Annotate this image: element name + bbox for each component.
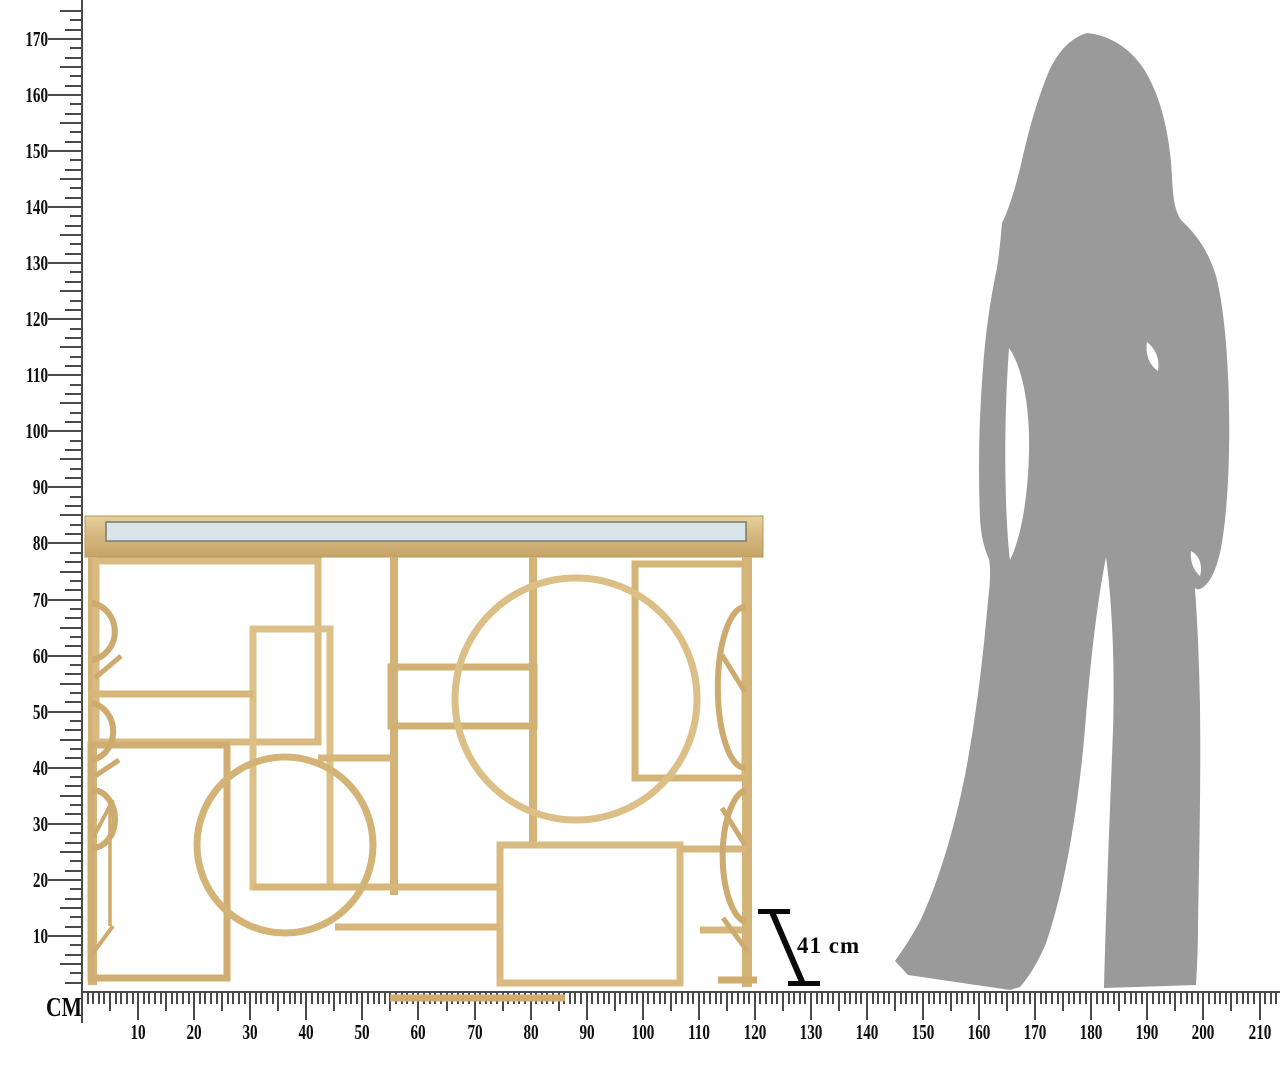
dimension-label: 41 cm: [797, 933, 860, 958]
table-posts: [88, 557, 752, 987]
product-dimension-diagram: 1020304050607080901001101201301401501601…: [0, 0, 1280, 1070]
gold-frame-circle-small: [197, 757, 373, 933]
gold-frame-circle-large: [455, 578, 697, 820]
table-mirror-top: [106, 522, 746, 541]
dimension-marker: 41 cm: [758, 909, 860, 986]
console-table-illustration: [85, 516, 763, 998]
diagram-canvas: 41 cm: [0, 0, 1280, 1070]
table-rectangle-frames: [91, 561, 745, 983]
dimension-bottom-tick: [788, 981, 820, 986]
person-silhouette: [895, 33, 1229, 990]
silhouette-body: [895, 33, 1229, 990]
